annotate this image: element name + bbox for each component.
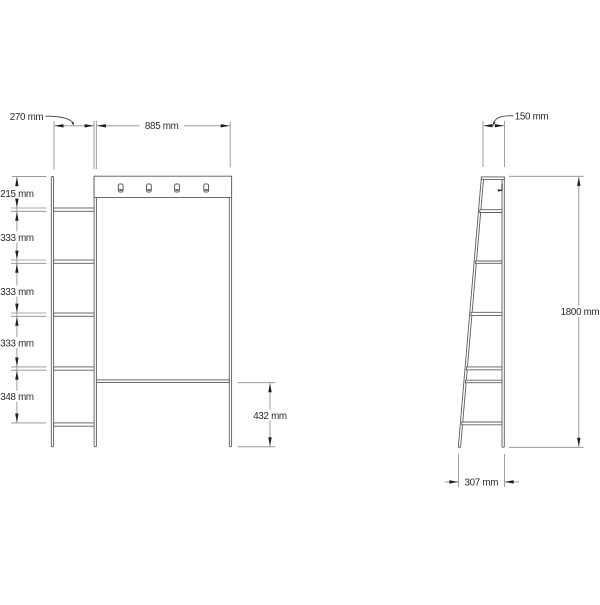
svg-text:215 mm: 215 mm (0, 189, 34, 200)
svg-text:1800 mm: 1800 mm (561, 307, 600, 318)
svg-text:348 mm: 348 mm (0, 392, 34, 403)
svg-text:432 mm: 432 mm (253, 411, 287, 422)
svg-text:333 mm: 333 mm (0, 338, 34, 349)
svg-text:307 mm: 307 mm (465, 477, 499, 488)
svg-text:333 mm: 333 mm (0, 287, 34, 298)
svg-text:270 mm: 270 mm (10, 112, 44, 123)
svg-text:333 mm: 333 mm (0, 233, 34, 244)
svg-text:885 mm: 885 mm (145, 121, 179, 132)
svg-text:150 mm: 150 mm (515, 111, 549, 122)
